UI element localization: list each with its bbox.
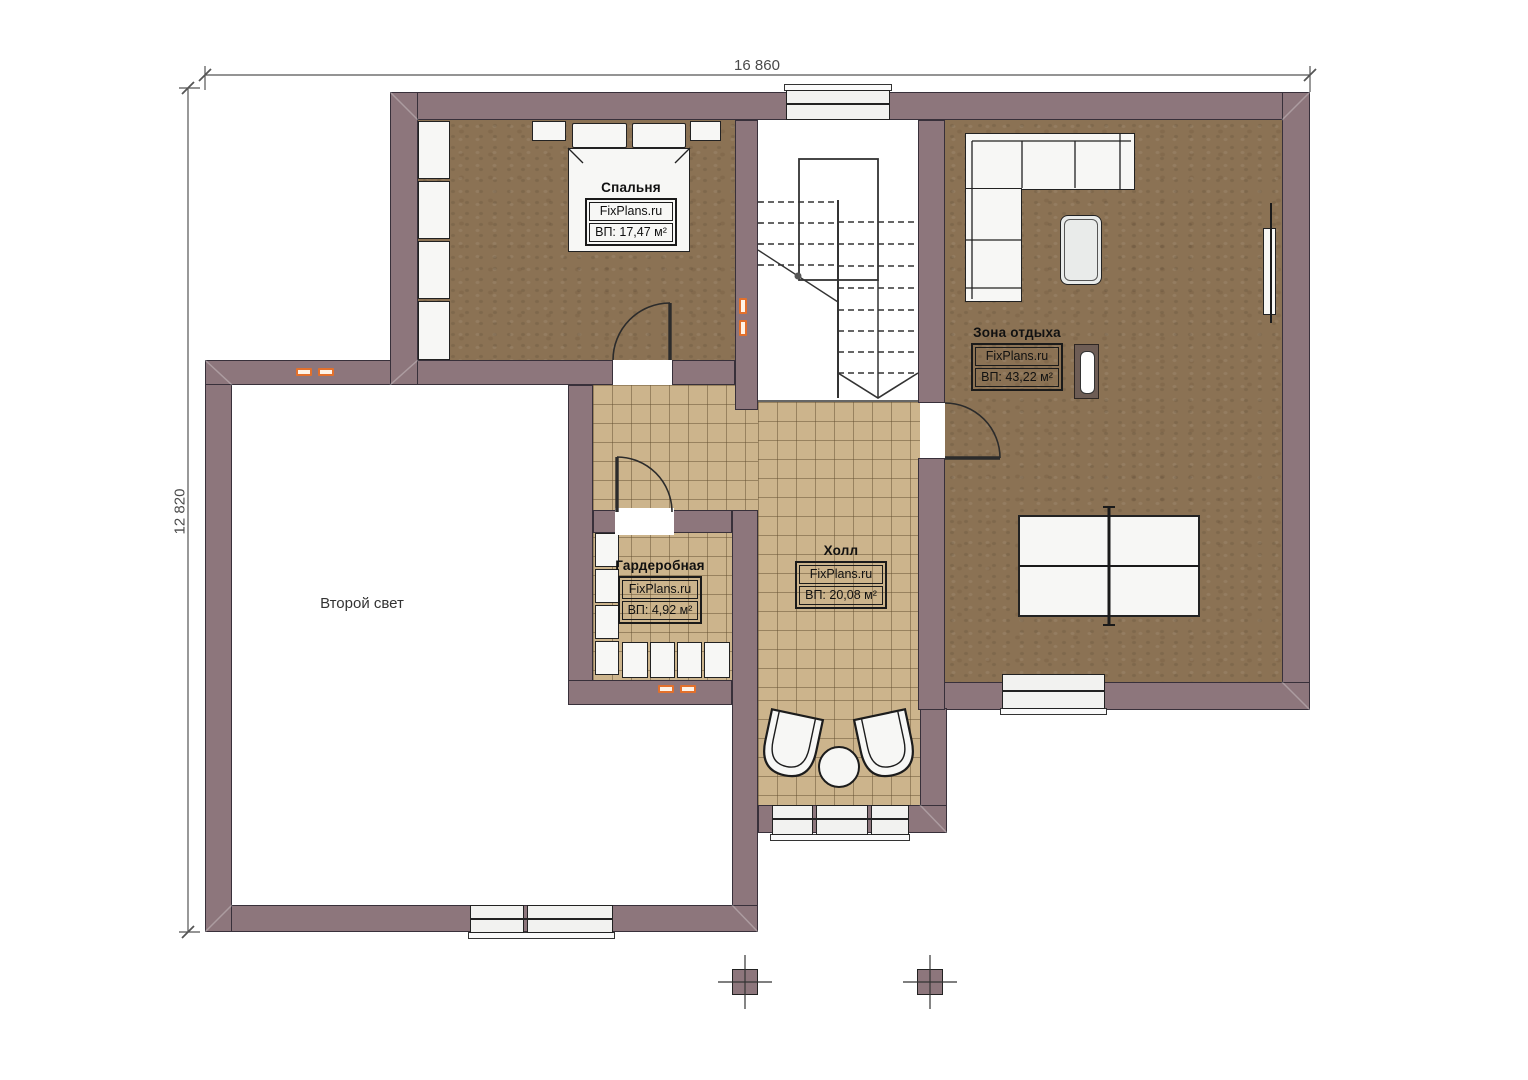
pillow-left bbox=[572, 123, 627, 148]
lounge-window bbox=[1002, 674, 1105, 709]
wardrobe-info-box: FixPlans.ru ВП: 4,92 м² bbox=[618, 576, 703, 624]
dimension-width-label: 16 860 bbox=[712, 57, 802, 74]
wall-wardrobe-top-left bbox=[593, 510, 617, 533]
pillow-right bbox=[632, 123, 686, 148]
hall-area: ВП: 20,08 м² bbox=[799, 586, 883, 605]
brand-text: FixPlans.ru bbox=[589, 202, 673, 221]
cabinet bbox=[418, 181, 450, 239]
label-wardrobe: Гардеробная FixPlans.ru ВП: 4,92 м² bbox=[608, 558, 712, 624]
shelf bbox=[595, 641, 619, 675]
cabinet bbox=[418, 121, 450, 179]
heater-marker bbox=[296, 368, 312, 376]
wall-hall-void bbox=[568, 385, 593, 705]
void-window-sill bbox=[468, 932, 615, 939]
heater-marker bbox=[680, 685, 696, 693]
sofa-horizontal bbox=[965, 133, 1135, 190]
wardrobe-name: Гардеробная bbox=[608, 558, 712, 573]
dimension-height-label: 12 820 bbox=[172, 467, 189, 557]
lounge-area: ВП: 43,22 м² bbox=[975, 368, 1059, 387]
wall-wardrobe-bottom bbox=[568, 680, 732, 705]
coffee-table bbox=[1060, 215, 1102, 285]
cabinet bbox=[418, 301, 450, 360]
bay-window-sill bbox=[770, 834, 910, 841]
cabinet bbox=[418, 241, 450, 299]
shelf bbox=[704, 642, 730, 678]
bay-window-1 bbox=[772, 805, 813, 835]
wall-wardrobe-top-right bbox=[672, 510, 732, 533]
heater-marker bbox=[739, 298, 747, 314]
floor-plan: 16 860 12 820 Спальня FixPlans.ru ВП: 17… bbox=[0, 0, 1528, 1080]
bedroom-area: ВП: 17,47 м² bbox=[589, 223, 673, 242]
void-window-mullion bbox=[471, 918, 612, 920]
lounge-info-box: FixPlans.ru ВП: 43,22 м² bbox=[971, 343, 1063, 391]
void-label: Второй свет bbox=[307, 595, 417, 612]
nightstand-left bbox=[532, 121, 566, 141]
bedroom-name: Спальня bbox=[576, 180, 686, 195]
brand-text: FixPlans.ru bbox=[622, 580, 699, 599]
heater-marker bbox=[658, 685, 674, 693]
lounge-name: Зона отдыха bbox=[964, 325, 1070, 340]
column bbox=[732, 969, 758, 995]
heater-marker bbox=[318, 368, 334, 376]
tv bbox=[1263, 228, 1276, 315]
nightstand-right bbox=[690, 121, 721, 141]
bay-window-mullion bbox=[773, 818, 908, 820]
column bbox=[917, 969, 943, 995]
bay-window-3 bbox=[871, 805, 909, 835]
stair-floor bbox=[758, 120, 918, 402]
pingpong-table bbox=[1018, 515, 1200, 617]
wardrobe-area: ВП: 4,92 м² bbox=[622, 601, 699, 620]
brand-text: FixPlans.ru bbox=[799, 565, 883, 584]
wall-left bbox=[205, 360, 232, 932]
wardrobe-door-gap bbox=[615, 508, 674, 535]
wall-lounge-bottom bbox=[920, 682, 1310, 710]
shelf bbox=[622, 642, 648, 678]
wall-stair-right bbox=[918, 120, 945, 403]
bay-window-2 bbox=[816, 805, 868, 835]
wall-bedroom-bottom-right bbox=[672, 360, 735, 385]
wall-right bbox=[1282, 92, 1310, 710]
lounge-window-sill bbox=[1000, 708, 1107, 715]
wall-topblock-left bbox=[390, 92, 418, 385]
wall-bay-left bbox=[732, 510, 758, 932]
hall-name: Холл bbox=[788, 543, 894, 558]
bedroom-info-box: FixPlans.ru ВП: 17,47 м² bbox=[585, 198, 677, 246]
wall-niche bbox=[1074, 344, 1099, 399]
stair-window bbox=[786, 90, 890, 120]
wall-stair-left bbox=[735, 120, 758, 410]
lounge-window-mullion bbox=[1003, 690, 1104, 692]
wall-niche-inner bbox=[1080, 351, 1095, 394]
stair-window-mullion bbox=[787, 103, 889, 105]
wall-hall-lounge bbox=[918, 458, 945, 710]
label-bedroom: Спальня FixPlans.ru ВП: 17,47 м² bbox=[576, 180, 686, 246]
brand-text: FixPlans.ru bbox=[975, 347, 1059, 366]
shelf bbox=[677, 642, 702, 678]
sofa-vertical bbox=[965, 188, 1022, 302]
hall-info-box: FixPlans.ru ВП: 20,08 м² bbox=[795, 561, 887, 609]
shelf bbox=[650, 642, 675, 678]
label-hall: Холл FixPlans.ru ВП: 20,08 м² bbox=[788, 543, 894, 609]
heater-marker bbox=[739, 320, 747, 336]
hall-bay-floor bbox=[758, 700, 920, 805]
coffee-table-top bbox=[1064, 219, 1098, 281]
label-lounge: Зона отдыха FixPlans.ru ВП: 43,22 м² bbox=[964, 325, 1070, 391]
